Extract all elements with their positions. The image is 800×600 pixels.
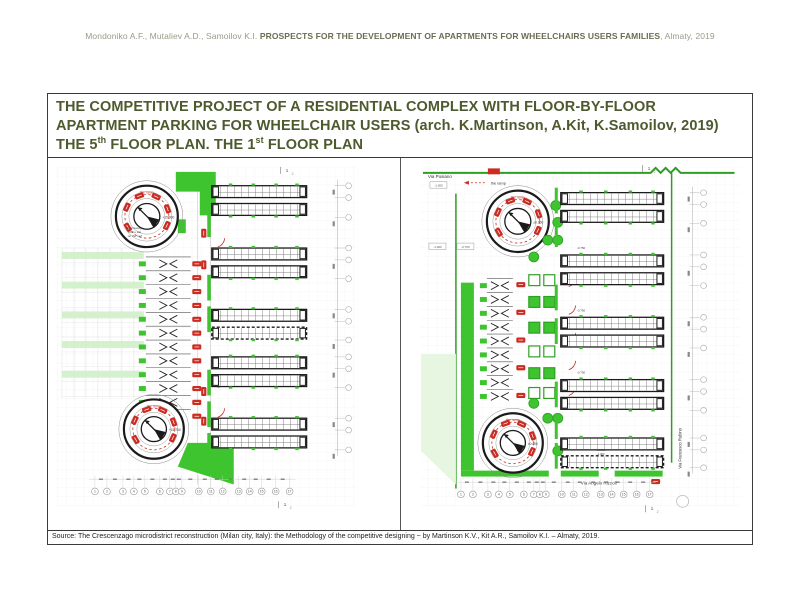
elevation-label: -0.750 xyxy=(576,246,585,250)
grid-axis-number: 8 xyxy=(175,490,177,494)
car-symbol xyxy=(201,260,206,269)
ramp-label: the ramp xyxy=(506,418,519,422)
grid-axis-number: 10 xyxy=(559,493,563,497)
car-symbol xyxy=(192,400,201,405)
grid-axis-number: 11 xyxy=(571,493,575,497)
source-note: Source: The Crescenzago microdistrict re… xyxy=(48,530,752,544)
level-box: -1.000 xyxy=(433,245,442,249)
grid-axis-number: 12 xyxy=(583,493,587,497)
ramp-label: the ramp xyxy=(511,196,524,200)
grid-axis-number: 16 xyxy=(634,493,638,497)
car-symbol xyxy=(516,365,525,370)
grid-axis-number: 5 xyxy=(508,493,510,497)
car-symbol xyxy=(516,282,525,287)
elevation-label: +15.750 xyxy=(169,428,181,432)
car-symbol xyxy=(192,289,201,294)
grid-axis-number: 3 xyxy=(486,493,488,497)
header-authors: Mondoniko A.F., Mutaliev A.D., Samoilov … xyxy=(85,31,260,41)
figure-title-line2: APARTMENT PARKING FOR WHEELCHAIR USERS (… xyxy=(56,117,744,136)
grid-axis-number: 17 xyxy=(647,493,651,497)
car-symbol xyxy=(192,372,201,377)
grid-axis-number: 9 xyxy=(181,490,183,494)
car-symbol xyxy=(201,417,206,426)
page-header: Mondoniko A.F., Mutaliev A.D., Samoilov … xyxy=(0,31,800,41)
ramp-label: the ramp xyxy=(140,191,153,195)
figure-plate: THE COMPETITIVE PROJECT OF A RESIDENTIAL… xyxy=(47,93,753,545)
grid-axis-number: 4 xyxy=(133,490,135,494)
car-symbol xyxy=(192,344,201,349)
grid-axis-number: 8 xyxy=(538,493,540,497)
floor-plan-5th: the ramp+15.000the Passageto the siteon … xyxy=(48,158,400,530)
grid-axis-number: 9 xyxy=(544,493,546,497)
grid-axis-number: 2 xyxy=(471,493,473,497)
car-symbol xyxy=(192,317,201,322)
section-mark: 2 xyxy=(656,510,658,514)
car-symbol xyxy=(516,337,525,342)
figure-title: THE COMPETITIVE PROJECT OF A RESIDENTIAL… xyxy=(48,94,752,158)
legend-label: the ramp xyxy=(490,182,505,186)
section-mark: 1 xyxy=(650,506,653,512)
grid-axis-number: 17 xyxy=(288,490,292,494)
floor-plan-1st: Via Pusiano-1.000-1.000-0.750the rampthe… xyxy=(401,158,753,530)
section-mark: 1 xyxy=(284,502,287,508)
car-symbol xyxy=(192,331,201,336)
car-symbol xyxy=(192,275,201,280)
section-mark: 1 xyxy=(647,166,650,172)
car-symbol xyxy=(201,229,206,238)
grid-axis-number: 1 xyxy=(94,490,96,494)
car-symbol xyxy=(192,303,201,308)
elevation-label: -1.000 xyxy=(596,452,604,456)
elevation-label: +15.000 xyxy=(162,215,174,219)
grid-axis-number: 14 xyxy=(248,490,252,494)
grid-axis-number: 15 xyxy=(621,493,625,497)
section-mark: 2 xyxy=(290,506,292,510)
grid-axis-number: 7 xyxy=(169,490,171,494)
grid-axis-number: 12 xyxy=(221,490,225,494)
car-symbol xyxy=(516,310,525,315)
level-box: -0.750 xyxy=(461,245,470,249)
grid-axis-number: 4 xyxy=(497,493,499,497)
plans-area: the ramp+15.000the Passageto the siteon … xyxy=(48,158,752,530)
car-symbol xyxy=(201,387,206,396)
section-mark: 2 xyxy=(653,170,655,174)
grid-axis-number: 14 xyxy=(609,493,613,497)
street-label-top: Via Pusiano xyxy=(427,174,451,179)
car-symbol xyxy=(516,393,525,398)
elevation-label: -0.750 xyxy=(576,308,585,312)
grid-axis-number: 13 xyxy=(237,490,241,494)
grid-axis-number: 16 xyxy=(274,490,278,494)
left-plan-pane: the ramp+15.000the Passageto the siteon … xyxy=(48,158,401,530)
grid-axis-number: 13 xyxy=(598,493,602,497)
elevation-label: -0.750 xyxy=(576,371,585,375)
section-mark: 1 xyxy=(286,168,289,174)
car-symbol xyxy=(192,386,201,391)
grid-axis-number: 3 xyxy=(122,490,124,494)
grid-axis-number: 5 xyxy=(144,490,146,494)
grid-axis-number: 2 xyxy=(106,490,108,494)
header-paper-title: PROSPECTS FOR THE DEVELOPMENT OF APARTME… xyxy=(260,31,660,41)
grid-axis-number: 15 xyxy=(260,490,264,494)
grid-axis-number: 10 xyxy=(197,490,201,494)
grid-axis-number: 11 xyxy=(209,490,213,494)
header-suffix: , Almaty, 2019 xyxy=(660,31,715,41)
grid-axis-number: 6 xyxy=(522,493,524,497)
grid-axis-number: 6 xyxy=(159,490,161,494)
street-label-bottom: Via Angelo Rizzoli xyxy=(580,481,616,486)
car-symbol xyxy=(192,358,201,363)
elevation-label: ±0.000 xyxy=(527,442,537,446)
right-plan-pane: Via Pusiano-1.000-1.000-0.750the rampthe… xyxy=(401,158,753,530)
elevation-label: ±0.000 xyxy=(533,220,543,224)
ramp-note: on the roof xyxy=(128,234,142,238)
grid-axis-number: 7 xyxy=(532,493,534,497)
ramp-label: the ramp xyxy=(147,404,160,408)
street-label-right: Via Francesco Rubino xyxy=(677,427,682,468)
section-mark: 2 xyxy=(292,172,294,176)
car-symbol xyxy=(651,479,660,484)
car-symbol xyxy=(192,414,201,419)
grid-axis-number: 1 xyxy=(459,493,461,497)
figure-title-line3: THE 5th FLOOR PLAN. THE 1st FLOOR PLAN xyxy=(56,135,744,154)
car-symbol xyxy=(192,261,201,266)
figure-title-line1: THE COMPETITIVE PROJECT OF A RESIDENTIAL… xyxy=(56,98,744,117)
level-box: -1.000 xyxy=(434,184,443,188)
